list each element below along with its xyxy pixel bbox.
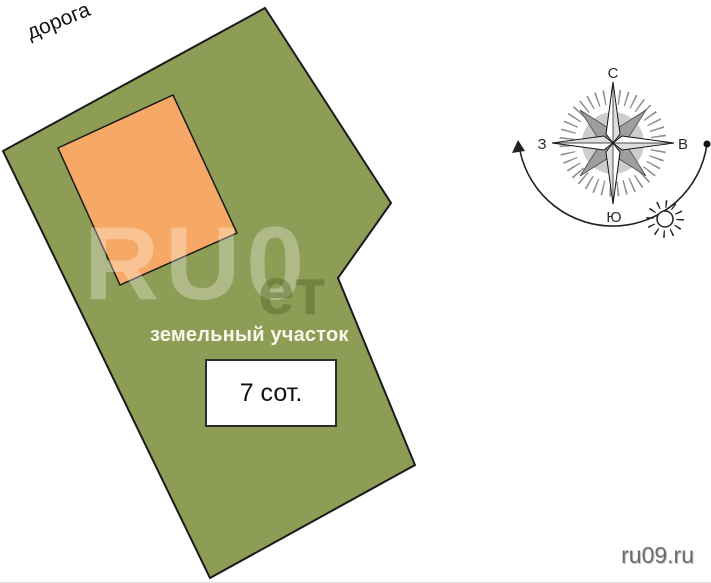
area-value: 7 сот. [240,379,303,408]
sun-path-arrowhead [512,140,525,153]
land-plot-shape [3,8,415,578]
compass-rose-icon: С В Ю З [512,65,711,234]
compass-axis-lines [552,82,674,204]
sun-path-start-dot [704,141,711,148]
compass-label-west: З [537,136,546,153]
plot-label: земельный участок [150,324,349,347]
compass-label-north: С [608,65,619,82]
compass-label-south: Ю [606,209,621,226]
compass-label-east: В [678,136,688,153]
land-plot-plan: С В Ю З дорога RU0 ет земельный участок … [0,0,711,583]
site-watermark: ru09.ru [621,542,694,569]
sun-icon [650,204,680,234]
area-box: 7 сот. [205,359,337,427]
plan-drawing: С В Ю З [0,0,711,583]
